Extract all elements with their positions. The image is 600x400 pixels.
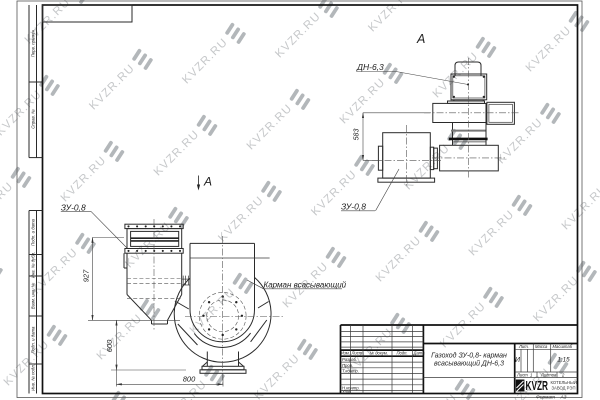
svg-text:ЗУ-0,8: ЗУ-0,8 (341, 201, 366, 211)
svg-text:583: 583 (354, 129, 361, 141)
svg-text:Формат: Формат (536, 395, 555, 400)
svg-text:1: 1 (530, 372, 532, 377)
svg-text:KVZR.RU: KVZR.RU (59, 154, 109, 204)
svg-text:Т.контр.: Т.контр. (342, 368, 359, 373)
svg-text:Лист: Лист (351, 351, 363, 356)
svg-text:KVZR.RU: KVZR.RU (216, 194, 266, 244)
svg-text:KVZR.RU: KVZR.RU (560, 182, 600, 232)
svg-text:Лит.: Лит. (518, 344, 529, 349)
svg-text:2: 2 (561, 372, 565, 377)
svg-text:всасывающий ДН-6,3: всасывающий ДН-6,3 (434, 360, 504, 368)
svg-text:Справ. №: Справ. № (31, 109, 36, 129)
svg-text:Изм.: Изм. (341, 351, 350, 356)
svg-text:Подп.: Подп. (397, 351, 408, 356)
svg-text:1:15: 1:15 (557, 357, 570, 364)
svg-text:Перв. примен.: Перв. примен. (31, 29, 36, 58)
svg-text:Подп. и дата: Подп. и дата (31, 326, 36, 354)
svg-text:Пров.: Пров. (342, 363, 353, 368)
svg-text:А: А (416, 32, 425, 46)
svg-text:KVZR.RU: KVZR.RU (524, 24, 574, 74)
svg-text:№ докум.: № докум. (370, 351, 388, 356)
svg-text:KVZR.RU: KVZR.RU (245, 102, 295, 152)
svg-text:KVZR.RU: KVZR.RU (95, 312, 145, 362)
svg-text:Листов: Листов (540, 372, 557, 377)
svg-text:KVZR.RU: KVZR.RU (152, 128, 202, 178)
svg-text:KVZR.RU: KVZR.RU (467, 208, 517, 258)
svg-text:KVZR.RU: KVZR.RU (273, 10, 323, 60)
svg-text:Дата: Дата (413, 351, 426, 356)
svg-text:KVZR.RU: KVZR.RU (531, 274, 581, 324)
svg-text:KVZR.RU: KVZR.RU (495, 116, 545, 166)
svg-text:KVZR.RU: KVZR.RU (0, 180, 16, 230)
svg-text:Подп. и дата: Подп. и дата (31, 218, 36, 246)
svg-text:Газоход ЗУ-0,8- карман: Газоход ЗУ-0,8- карман (431, 352, 507, 360)
svg-text:KVZR.RU: KVZR.RU (30, 246, 80, 296)
svg-text:Инв. № дубл.: Инв. № дубл. (31, 252, 36, 278)
svg-text:Взам. инв. №: Взам. инв. № (31, 282, 36, 309)
svg-text:KVZR.RU: KVZR.RU (374, 234, 424, 284)
svg-text:600: 600 (105, 339, 114, 352)
svg-text:ЗУ-0,8: ЗУ-0,8 (61, 202, 86, 212)
svg-text:ДН-6,3: ДН-6,3 (356, 62, 384, 72)
svg-text:927: 927 (82, 269, 91, 282)
svg-text:Инв. № подл.: Инв. № подл. (31, 364, 36, 391)
svg-text:Карман всасывающий: Карман всасывающий (264, 280, 347, 289)
svg-text:KVZR.RU: KVZR.RU (188, 286, 238, 336)
svg-text:800: 800 (183, 374, 196, 383)
svg-text:Масштаб: Масштаб (553, 344, 573, 349)
svg-text:Утв.: Утв. (342, 389, 352, 394)
svg-text:КОТЕЛЬНЫЙ: КОТЕЛЬНЫЙ (551, 380, 577, 385)
svg-text:KVZR.RU: KVZR.RU (431, 50, 481, 100)
svg-text:ЗАВОД РЭП: ЗАВОД РЭП (552, 386, 576, 391)
svg-text:KVZR.RU: KVZR.RU (0, 88, 44, 138)
svg-text:А: А (203, 175, 212, 189)
svg-text:Масса: Масса (535, 344, 548, 349)
svg-text:Разраб.: Разраб. (342, 357, 357, 362)
svg-text:KVZR.RU: KVZR.RU (87, 62, 137, 112)
svg-text:А3: А3 (560, 395, 567, 400)
svg-text:KVZR.RU: KVZR.RU (2, 338, 52, 388)
svg-text:Лист: Лист (516, 372, 528, 377)
svg-text:И: И (515, 357, 521, 364)
svg-text:KVZR.RU: KVZR.RU (402, 142, 452, 192)
svg-text:KVZR.RU: KVZR.RU (180, 36, 230, 86)
svg-text:KVZR: KVZR (526, 379, 549, 393)
